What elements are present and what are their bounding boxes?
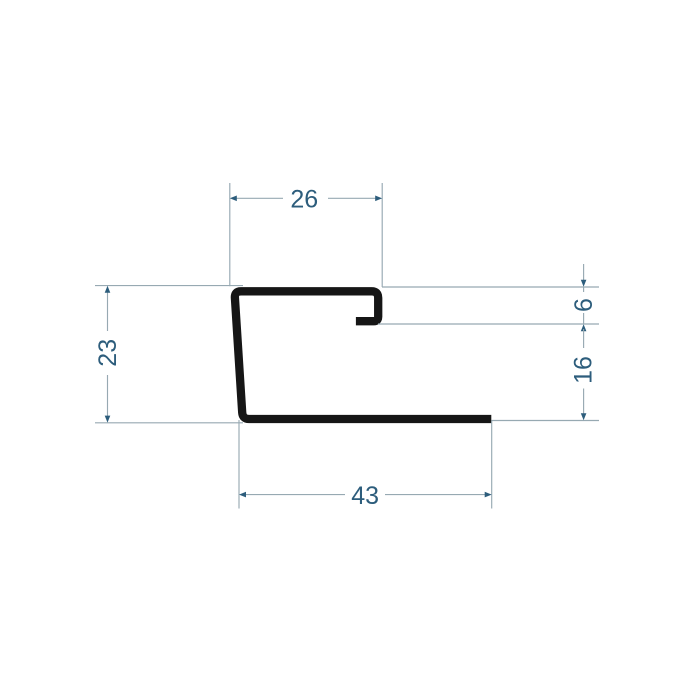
svg-text:26: 26 <box>290 186 318 214</box>
svg-text:6: 6 <box>570 298 598 312</box>
svg-text:23: 23 <box>94 339 122 367</box>
svg-text:43: 43 <box>351 482 379 510</box>
svg-text:16: 16 <box>570 356 598 384</box>
